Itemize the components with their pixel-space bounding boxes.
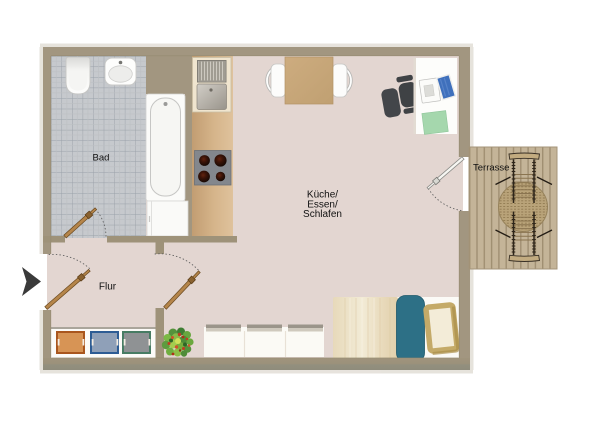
- svg-text:Flur: Flur: [99, 282, 117, 293]
- svg-text:Schlafen: Schlafen: [303, 209, 342, 220]
- svg-text:Terrasse: Terrasse: [473, 163, 509, 174]
- svg-text:Bad: Bad: [93, 153, 110, 164]
